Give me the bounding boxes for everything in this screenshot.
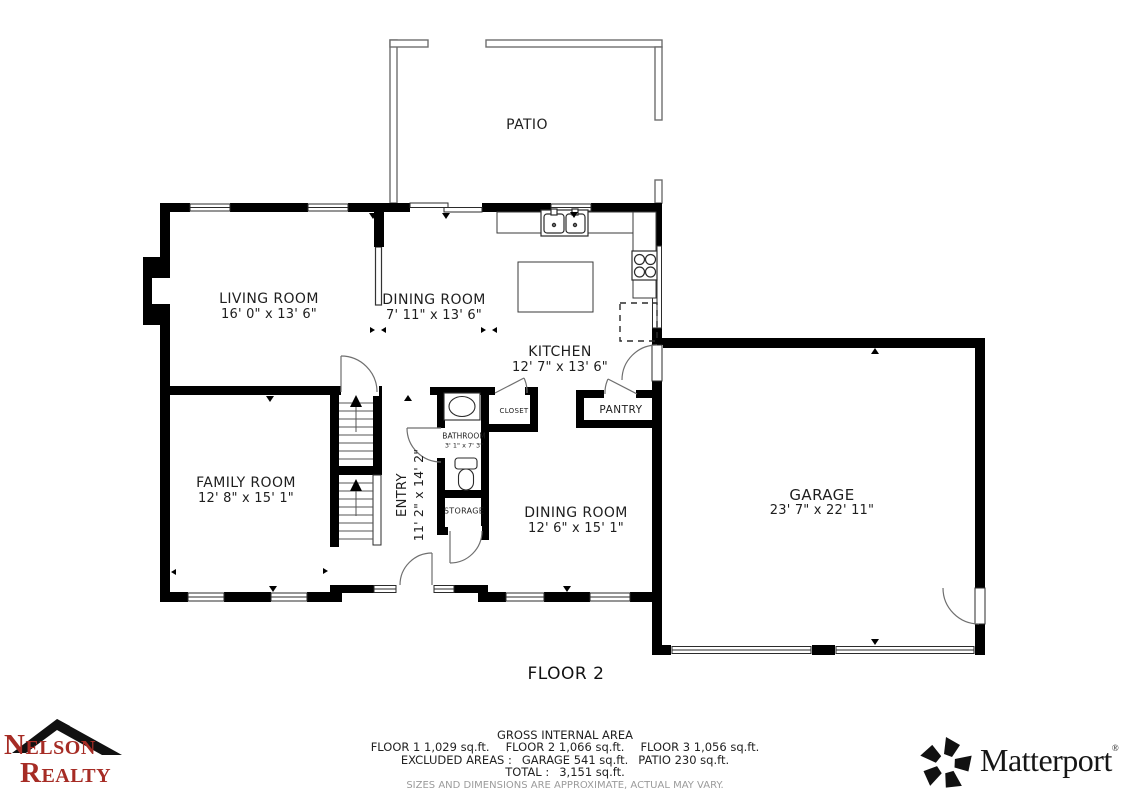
room-dims-living-room: 16' 0" x 13' 6" <box>219 307 319 323</box>
half-wall <box>376 247 382 305</box>
stove-icon <box>632 251 657 280</box>
matterport-logo: Matterport® <box>918 736 1123 792</box>
matterport-pinwheel-icon <box>918 736 974 792</box>
room-label-bathroom: BATHROOM 3' 1" x 7' 3" <box>442 433 485 450</box>
floor-title: FLOOR 2 <box>528 664 605 684</box>
room-dims-family-room: 12' 8" x 15' 1" <box>196 491 296 507</box>
toilet-icon <box>455 458 477 490</box>
area-summary-total: TOTAL :3,151 sq.ft. <box>250 766 880 778</box>
room-dims-entry: 11' 2" x 14' 2" <box>411 449 427 541</box>
kitchen-island <box>518 262 593 312</box>
room-label-pantry: PANTRY <box>599 404 642 416</box>
agency-name-line2: REALTY <box>20 759 111 788</box>
area-summary: GROSS INTERNAL AREA FLOOR 1 1,029 sq.ft.… <box>250 729 880 792</box>
room-label-dining-room-lower: DINING ROOM 12' 6" x 15' 1" <box>524 505 628 537</box>
agency-name-line1: NELSON <box>4 731 96 760</box>
room-label-dining-room-upper: DINING ROOM 7' 11" x 13' 6" <box>382 292 486 324</box>
kitchen-sink-icon <box>541 209 588 236</box>
room-label-closet: CLOSET <box>500 407 529 415</box>
bathroom-sink-icon <box>444 393 480 420</box>
area-summary-floors: FLOOR 1 1,029 sq.ft.FLOOR 2 1,066 sq.ft.… <box>250 741 880 753</box>
room-label-family-room: FAMILY ROOM 12' 8" x 15' 1" <box>196 475 296 507</box>
room-dims-dining-room-lower: 12' 6" x 15' 1" <box>524 521 628 537</box>
registered-mark: ® <box>1112 743 1119 753</box>
room-label-patio: PATIO <box>506 117 548 133</box>
room-dims-kitchen: 12' 7" x 13' 6" <box>512 360 608 376</box>
room-dims-bathroom: 3' 1" x 7' 3" <box>442 441 485 450</box>
room-dims-garage: 23' 7" x 22' 11" <box>770 503 874 519</box>
room-label-garage: GARAGE 23' 7" x 22' 11" <box>770 487 874 519</box>
matterport-wordmark: Matterport® <box>980 742 1119 779</box>
room-label-kitchen: KITCHEN 12' 7" x 13' 6" <box>512 344 608 376</box>
floor-plan-page: PATIO LIVING ROOM 16' 0" x 13' 6" DINING… <box>0 0 1132 800</box>
room-label-storage: STORAGE <box>444 507 484 516</box>
room-dims-dining-room-upper: 7' 11" x 13' 6" <box>382 308 486 324</box>
room-label-entry: ENTRY 11' 2" x 14' 2" <box>395 449 427 541</box>
disclaimer-text: SIZES AND DIMENSIONS ARE APPROXIMATE, AC… <box>250 780 880 792</box>
room-label-living-room: LIVING ROOM 16' 0" x 13' 6" <box>219 291 319 323</box>
